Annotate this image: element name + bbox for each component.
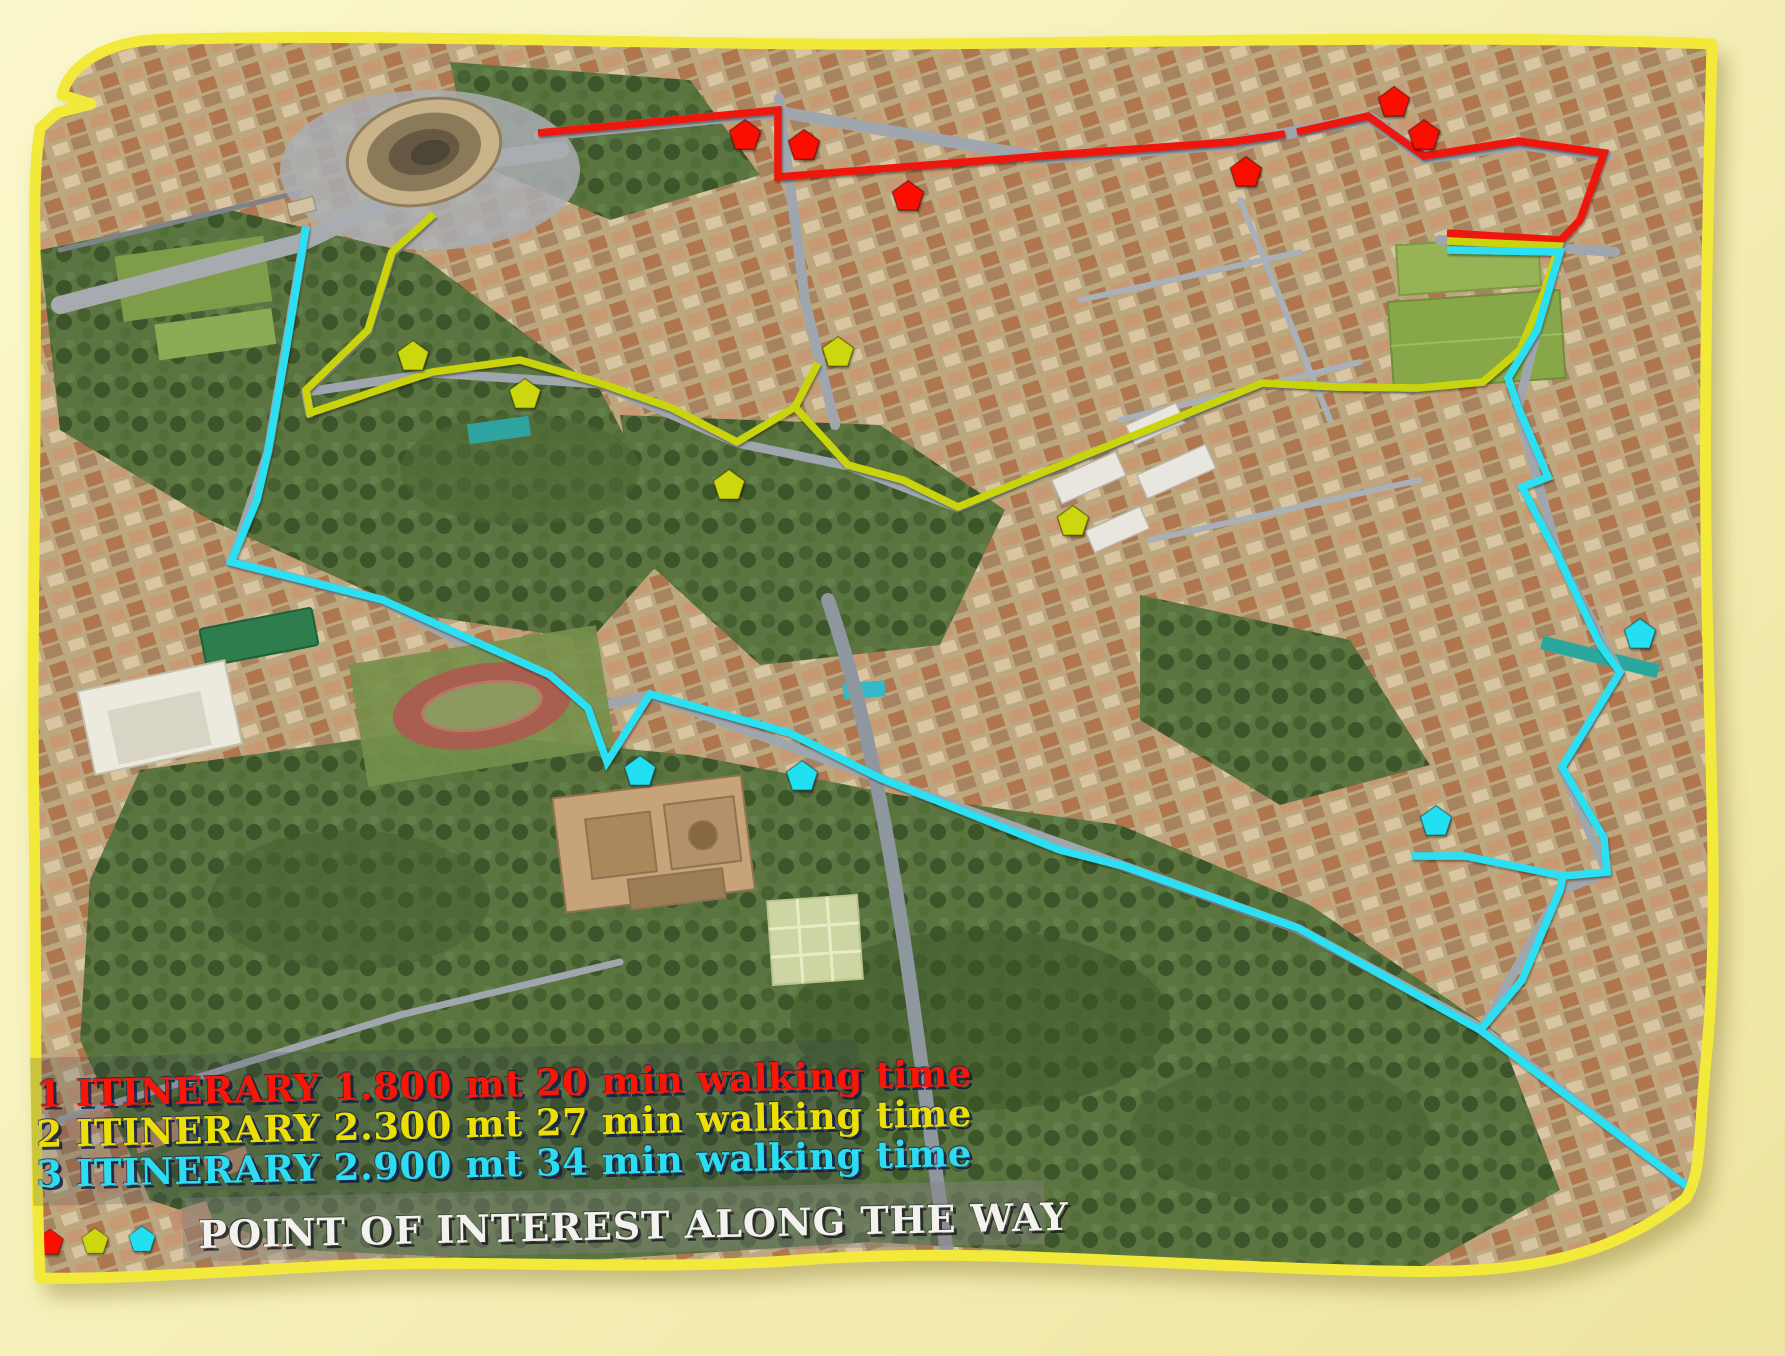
- itinerary-map-poster: 1 ITINERARY 1.800 mt 20 min walking time…: [0, 0, 1785, 1356]
- formal-garden: [767, 895, 863, 985]
- baths-ruins: [552, 775, 755, 917]
